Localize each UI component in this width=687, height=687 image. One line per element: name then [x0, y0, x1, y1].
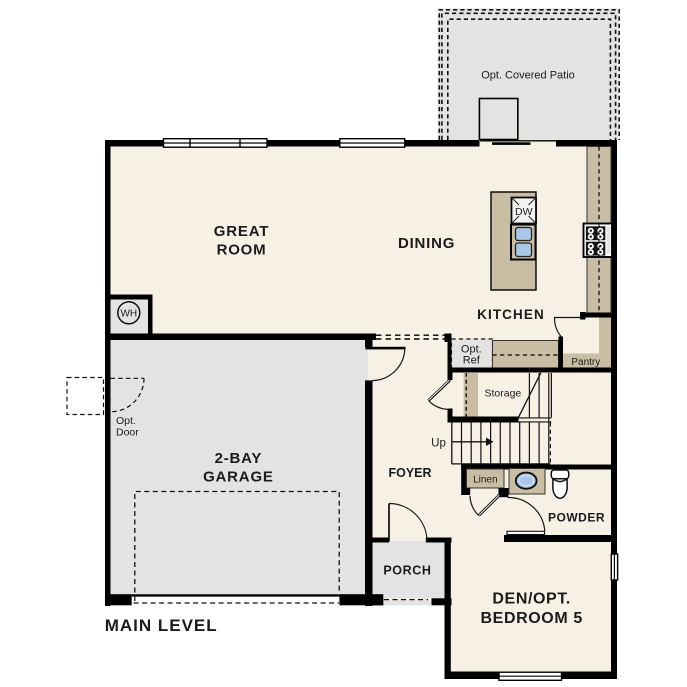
svg-text:Opt. Covered Patio: Opt. Covered Patio — [481, 69, 575, 81]
svg-text:Opt.: Opt. — [116, 415, 136, 427]
svg-text:DW: DW — [515, 206, 533, 218]
svg-text:2-BAY: 2-BAY — [215, 450, 263, 467]
svg-text:Door: Door — [116, 427, 139, 439]
svg-text:ROOM: ROOM — [217, 242, 267, 259]
svg-text:KITCHEN: KITCHEN — [477, 307, 545, 322]
svg-text:Up: Up — [431, 438, 446, 450]
svg-text:GREAT: GREAT — [214, 223, 269, 240]
svg-text:DEN/OPT.: DEN/OPT. — [492, 590, 571, 607]
svg-text:DINING: DINING — [398, 235, 455, 252]
svg-text:BEDROOM 5: BEDROOM 5 — [481, 610, 583, 627]
svg-text:Ref: Ref — [463, 355, 481, 367]
svg-text:Linen: Linen — [473, 475, 497, 486]
svg-text:MAIN LEVEL: MAIN LEVEL — [105, 616, 218, 635]
svg-text:PORCH: PORCH — [383, 564, 431, 578]
svg-text:Pantry: Pantry — [571, 357, 600, 368]
svg-text:Storage: Storage — [485, 387, 522, 399]
svg-text:GARAGE: GARAGE — [203, 469, 274, 486]
svg-text:POWDER: POWDER — [548, 510, 605, 524]
svg-text:FOYER: FOYER — [388, 466, 431, 480]
svg-text:WH: WH — [120, 309, 137, 320]
